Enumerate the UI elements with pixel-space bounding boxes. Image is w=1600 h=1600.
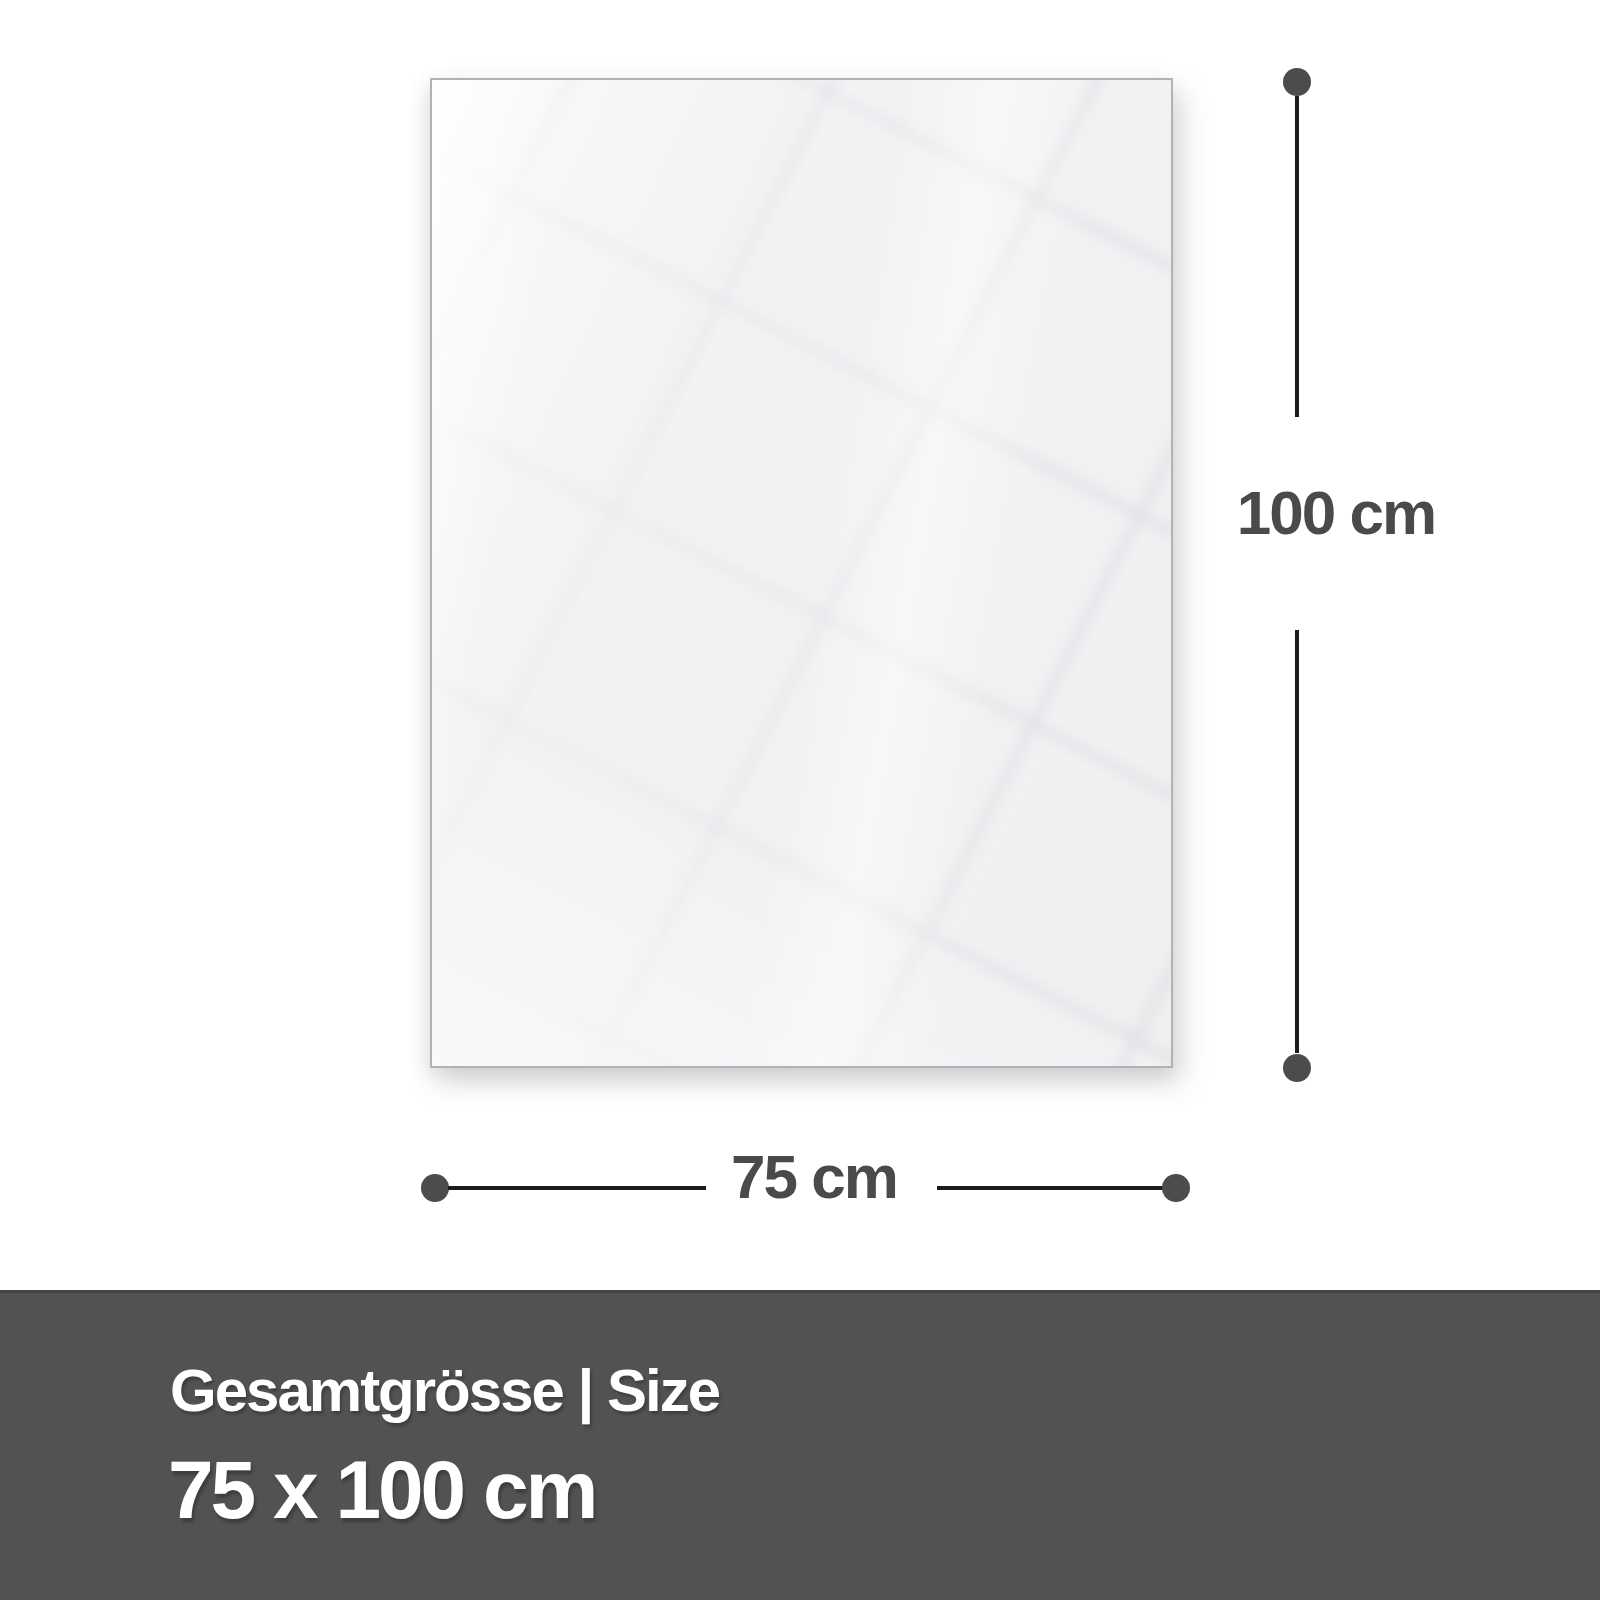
- width-dimension-line-right: [937, 1186, 1163, 1190]
- width-dimension-label: 75 cm: [714, 1146, 914, 1208]
- height-dimension-line-upper: [1295, 96, 1299, 417]
- footer-title: Gesamtgrösse | Size: [170, 1361, 719, 1421]
- dimension-endpoint-dot-bottom: [1283, 1054, 1311, 1082]
- product-panel: [430, 78, 1173, 1068]
- gloss-sheen-overlay: [432, 80, 1171, 1066]
- dimension-endpoint-dot-left: [421, 1174, 449, 1202]
- size-footer-bar: Gesamtgrösse | Size 75 x 100 cm: [0, 1290, 1600, 1600]
- height-dimension-label: 100 cm: [1236, 482, 1436, 544]
- dimension-endpoint-dot-right: [1162, 1174, 1190, 1202]
- footer-size-value: 75 x 100 cm: [168, 1449, 596, 1531]
- product-dimension-diagram: 100 cm 75 cm Gesamtgrösse | Size 75 x 10…: [0, 0, 1600, 1600]
- height-dimension-line-lower: [1295, 630, 1299, 1053]
- dimension-endpoint-dot-top: [1283, 68, 1311, 96]
- width-dimension-line-left: [448, 1186, 706, 1190]
